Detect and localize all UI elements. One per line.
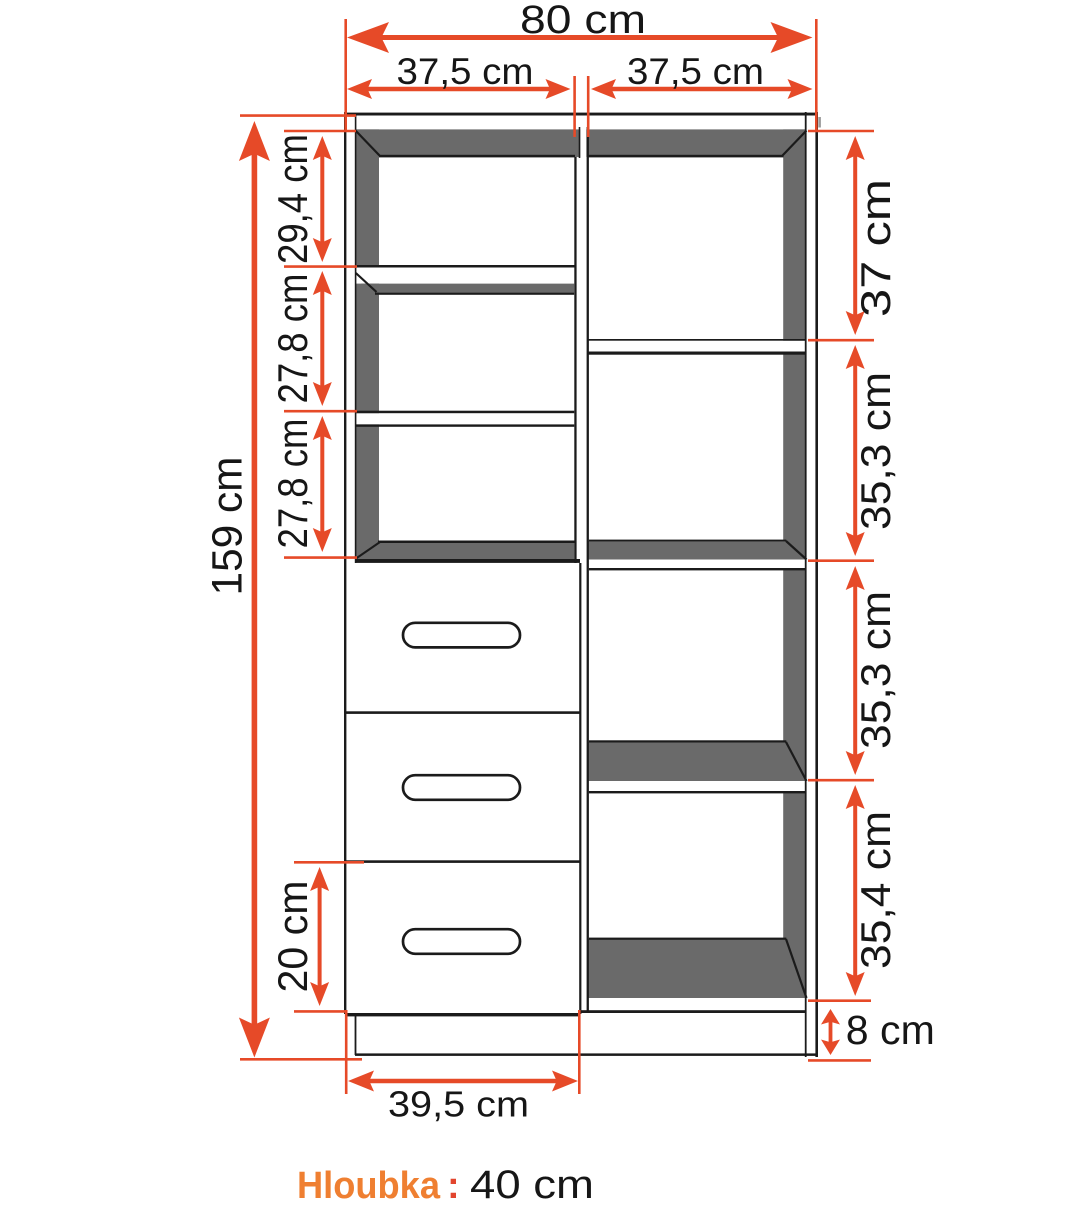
- svg-text:Hloubka: Hloubka: [297, 1165, 441, 1207]
- svg-text:39,5 cm: 39,5 cm: [388, 1084, 529, 1125]
- svg-text:8 cm: 8 cm: [846, 1007, 935, 1053]
- svg-text:35,4 cm: 35,4 cm: [852, 811, 899, 969]
- svg-text:159 cm: 159 cm: [204, 457, 252, 596]
- svg-text::: :: [447, 1165, 460, 1207]
- svg-text:37 cm: 37 cm: [852, 179, 899, 317]
- svg-text:80 cm: 80 cm: [520, 0, 646, 42]
- svg-text:35,3 cm: 35,3 cm: [852, 591, 899, 749]
- svg-text:37,5 cm: 37,5 cm: [627, 51, 764, 92]
- svg-text:20 cm: 20 cm: [269, 881, 316, 993]
- svg-text:27,8 cm: 27,8 cm: [269, 274, 316, 404]
- svg-text:35,3 cm: 35,3 cm: [852, 372, 899, 530]
- svg-text:37,5 cm: 37,5 cm: [397, 51, 534, 92]
- svg-text:27,8 cm: 27,8 cm: [269, 419, 316, 549]
- svg-text:40 cm: 40 cm: [470, 1163, 594, 1207]
- svg-text:29,4 cm: 29,4 cm: [269, 134, 316, 264]
